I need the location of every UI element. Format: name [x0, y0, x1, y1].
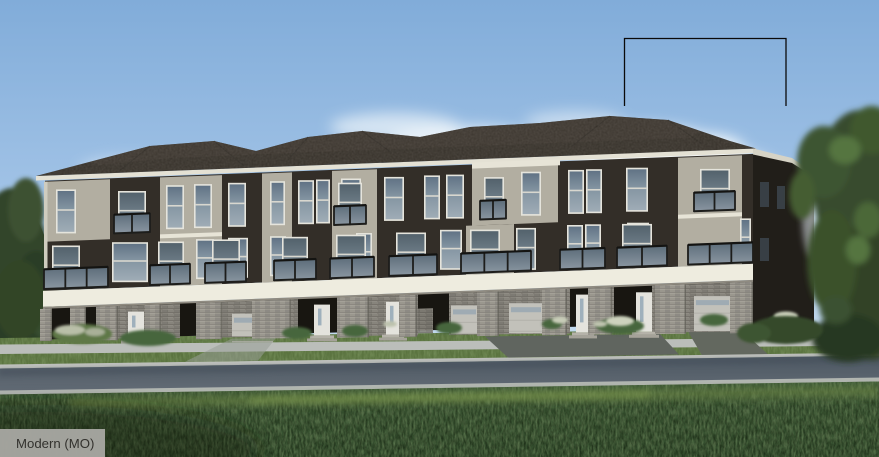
svg-text:Modern (MO): Modern (MO) [16, 436, 94, 451]
